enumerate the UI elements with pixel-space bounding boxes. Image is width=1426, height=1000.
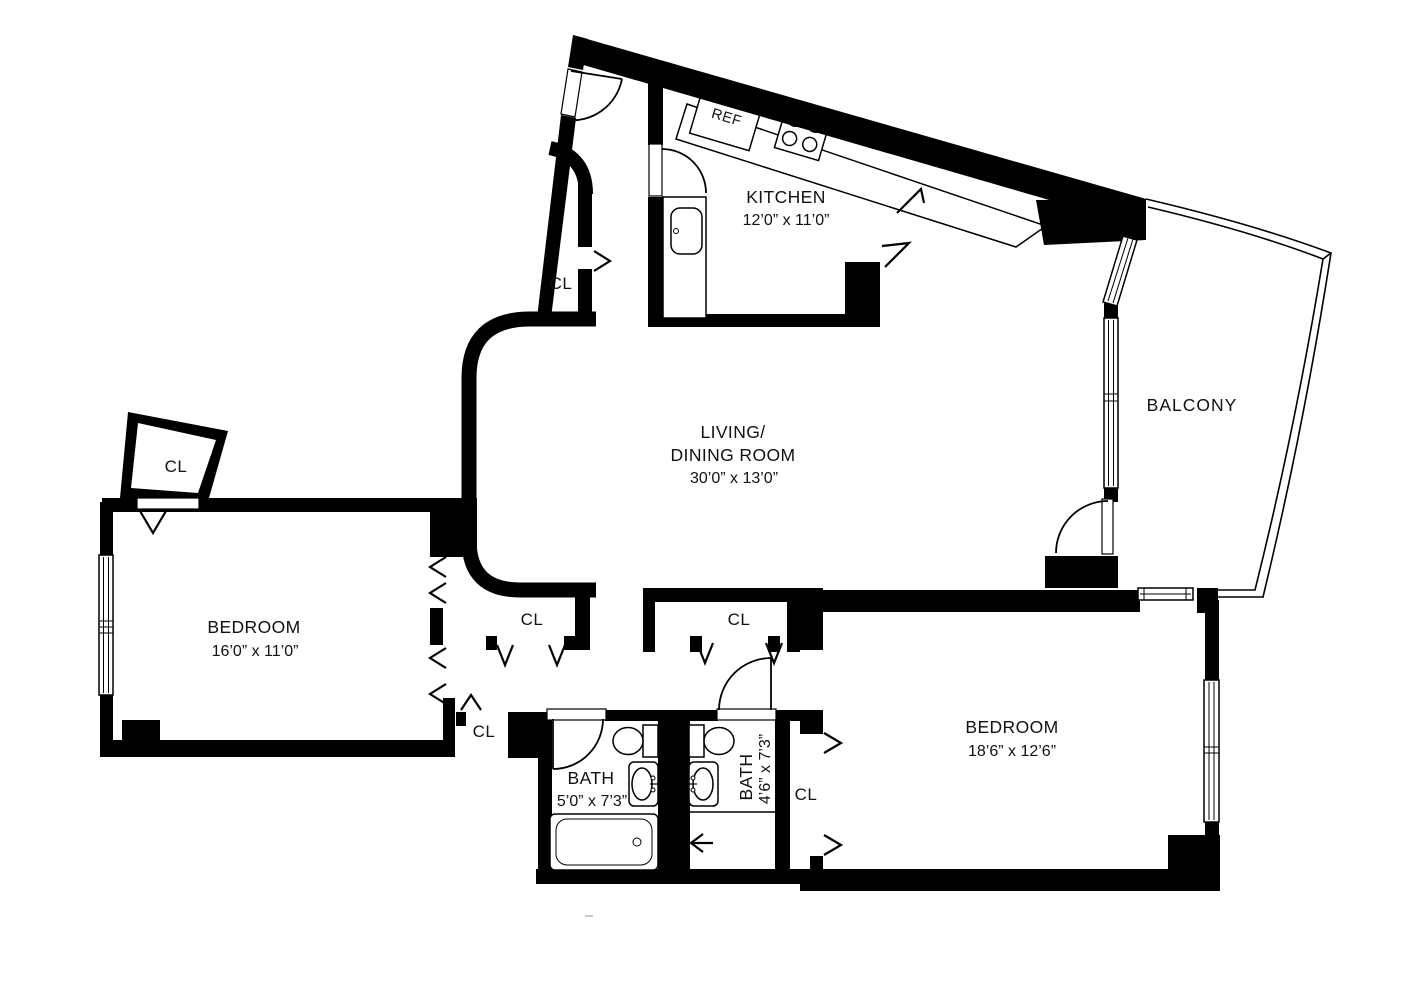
floor-plan: REF [0, 0, 1426, 1000]
closet-vestibule-label: CL [550, 274, 573, 293]
bathtub [550, 814, 658, 870]
closet-small-label: CL [473, 722, 496, 741]
bath-main-door-threshold [547, 709, 606, 720]
bath-second-label: BATH [736, 754, 756, 801]
bedroom-left-dims: 16’0” x 11’0” [212, 643, 299, 660]
kitchen-door [662, 149, 706, 193]
closet-bedroom-left-threshold [137, 498, 199, 509]
window-balcony-strip [1138, 588, 1193, 600]
living-dims: 30’0” x 13’0” [690, 470, 778, 487]
bedroom-left-door-mark [430, 583, 446, 603]
toilet-bath-second [689, 725, 734, 757]
kitchen-sink [663, 197, 706, 318]
window-bedroom-right [1204, 680, 1219, 822]
kitchen-opening-mark [882, 243, 909, 267]
bedroom-right-label: BEDROOM [965, 717, 1058, 737]
living-label-2: DINING ROOM [671, 445, 796, 465]
kitchen-dims: 12’0” x 11’0” [743, 212, 830, 229]
closet-bedroom-left-label: CL [165, 457, 188, 476]
bath-second-door [719, 658, 771, 710]
balcony-label: BALCONY [1147, 395, 1238, 415]
closet-small-door-mark [461, 695, 481, 710]
window-balcony-slanted [1103, 236, 1137, 306]
sink-bath-main [629, 762, 658, 806]
closet-bedroom-right-door-mark [824, 835, 841, 855]
closet-bedroom-left-door-mark [140, 511, 166, 533]
bath-main-dims: 5’0” x 7’3” [557, 793, 627, 810]
closet-hall2-label: CL [728, 610, 751, 629]
kitchen-door-leaf [649, 144, 662, 196]
closet-bedroom-right-label: CL [795, 785, 818, 804]
bedroom-left-label: BEDROOM [207, 617, 300, 637]
window-bedroom-left [99, 555, 113, 695]
bath-second-door-threshold [717, 709, 776, 720]
balcony-door-leaf [1102, 499, 1113, 554]
sink-bath-second [689, 762, 718, 806]
closet-vestibule-door-mark [594, 251, 610, 271]
entry-door-threshold [561, 69, 582, 117]
bath-main-door [553, 719, 603, 769]
closet-hall1-door-mark [549, 645, 565, 665]
hall-opening-mark [430, 648, 446, 668]
kitchen-label: KITCHEN [746, 187, 826, 207]
bath-main-label: BATH [568, 768, 615, 788]
bedroom-right-dims: 18’6” x 12’6” [968, 743, 1056, 760]
toilet-bath-main [613, 725, 658, 757]
living-label-1: LIVING/ [700, 422, 765, 442]
bedroom-left-door-mark [430, 557, 446, 577]
window-balcony-long [1104, 318, 1118, 488]
floor-plan-svg: REF [0, 0, 1426, 1000]
closet-hall1-door-mark [497, 645, 513, 665]
scale-mark [585, 915, 593, 917]
curved-walls [469, 148, 596, 590]
closet-bedroom-right-door-mark [824, 733, 841, 753]
balcony-door [1056, 501, 1108, 553]
bath-second-dims: 4’6” x 7’3” [757, 734, 774, 804]
closet-hall1-label: CL [521, 610, 544, 629]
